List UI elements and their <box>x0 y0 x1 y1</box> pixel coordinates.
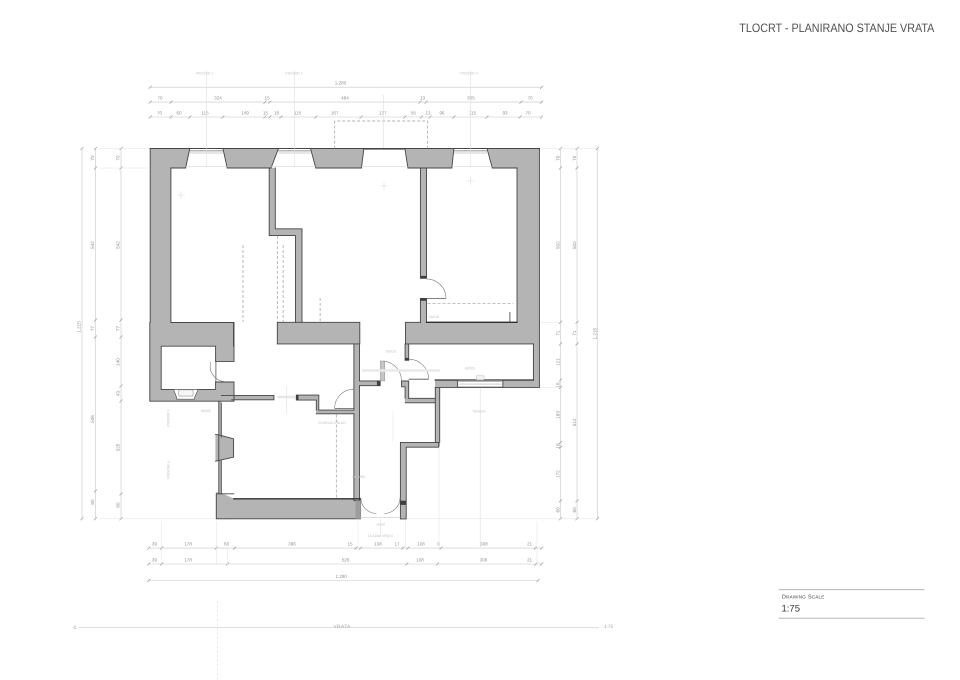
svg-text:39: 39 <box>152 542 158 547</box>
svg-text:18: 18 <box>274 111 280 116</box>
svg-text:526: 526 <box>342 557 350 562</box>
svg-text:18: 18 <box>556 443 561 449</box>
svg-text:108: 108 <box>416 557 424 562</box>
svg-text:17: 17 <box>394 542 400 547</box>
svg-text:ULAZNA VRATA: ULAZNA VRATA <box>368 534 394 538</box>
svg-text:60: 60 <box>224 542 230 547</box>
svg-text:1.280: 1.280 <box>335 81 347 86</box>
svg-text:138: 138 <box>374 542 382 547</box>
svg-text:1.280: 1.280 <box>335 574 347 579</box>
svg-text:15: 15 <box>264 96 270 101</box>
svg-text:PROZOR 1: PROZOR 1 <box>196 72 213 76</box>
svg-text:70: 70 <box>157 111 163 116</box>
svg-text:149: 149 <box>241 111 249 116</box>
svg-text:90/205: 90/205 <box>201 409 211 413</box>
svg-text:39: 39 <box>152 557 158 562</box>
svg-text:60: 60 <box>572 507 577 513</box>
svg-text:77: 77 <box>90 326 95 332</box>
svg-text:506: 506 <box>90 415 95 423</box>
svg-text:172: 172 <box>556 470 561 478</box>
svg-text:18: 18 <box>556 382 561 388</box>
svg-text:90/210: 90/210 <box>429 315 439 319</box>
svg-text:121: 121 <box>556 358 561 366</box>
svg-text:178: 178 <box>184 557 192 562</box>
svg-text:178: 178 <box>184 542 192 547</box>
svg-text:93: 93 <box>502 111 508 116</box>
svg-text:PROZOR 3: PROZOR 3 <box>460 72 477 76</box>
svg-text:108: 108 <box>417 542 425 547</box>
svg-text:TERASA: TERASA <box>472 410 486 414</box>
svg-text:70: 70 <box>572 155 577 161</box>
svg-text:15: 15 <box>263 111 269 116</box>
svg-text:96: 96 <box>439 111 445 116</box>
svg-text:1.215: 1.215 <box>593 328 598 340</box>
svg-text:15: 15 <box>347 542 353 547</box>
svg-text:PROZOR 2: PROZOR 2 <box>285 72 302 76</box>
svg-text:HODNIK: HODNIK <box>352 475 366 479</box>
svg-text:167: 167 <box>331 111 339 116</box>
svg-text:115: 115 <box>201 111 209 116</box>
svg-text:KUHINJA S BLAG.: KUHINJA S BLAG. <box>318 421 347 425</box>
svg-text:90/210: 90/210 <box>386 350 396 354</box>
svg-text:1:75: 1:75 <box>604 624 614 630</box>
svg-text:±0,00: ±0,00 <box>376 523 385 527</box>
svg-text:140: 140 <box>116 358 121 366</box>
svg-text:183: 183 <box>556 411 561 419</box>
svg-text:502: 502 <box>572 241 577 249</box>
svg-text:70: 70 <box>525 111 531 116</box>
svg-text:396: 396 <box>288 542 296 547</box>
svg-text:137: 137 <box>379 111 387 116</box>
svg-text:70: 70 <box>157 96 163 101</box>
svg-text:542: 542 <box>116 241 121 249</box>
svg-text:305: 305 <box>467 96 475 101</box>
svg-text:1:75: 1:75 <box>782 604 801 615</box>
svg-text:PROZOR 5: PROZOR 5 <box>167 409 171 426</box>
svg-text:0.: 0. <box>73 625 77 631</box>
svg-text:13: 13 <box>425 111 431 116</box>
svg-text:21: 21 <box>527 542 533 547</box>
svg-text:324: 324 <box>214 96 222 101</box>
svg-text:60: 60 <box>116 502 121 508</box>
svg-text:502: 502 <box>556 241 561 249</box>
svg-text:542: 542 <box>90 241 95 249</box>
svg-text:71: 71 <box>556 330 561 336</box>
svg-text:0: 0 <box>437 542 440 547</box>
svg-text:43: 43 <box>116 391 121 397</box>
svg-text:1.215: 1.215 <box>77 321 82 333</box>
svg-text:70: 70 <box>527 96 533 101</box>
svg-text:70: 70 <box>556 155 561 161</box>
svg-text:70: 70 <box>116 155 121 161</box>
svg-text:484: 484 <box>341 96 349 101</box>
svg-text:13: 13 <box>420 96 426 101</box>
svg-text:308: 308 <box>480 542 488 547</box>
svg-text:115: 115 <box>294 111 302 116</box>
svg-text:55: 55 <box>411 111 417 116</box>
svg-text:308: 308 <box>480 557 488 562</box>
svg-text:60: 60 <box>90 499 95 505</box>
svg-text:21: 21 <box>527 557 533 562</box>
svg-text:VRATA: VRATA <box>333 624 351 630</box>
svg-text:512: 512 <box>572 418 577 426</box>
svg-text:PROZOR 6: PROZOR 6 <box>167 461 171 478</box>
svg-text:77: 77 <box>116 326 121 332</box>
svg-text:70: 70 <box>90 155 95 161</box>
svg-text:60: 60 <box>556 507 561 513</box>
svg-text:TLOCRT - PLANIRANO STANJE VRAT: TLOCRT - PLANIRANO STANJE VRATA <box>739 21 935 35</box>
svg-text:115: 115 <box>469 111 477 116</box>
svg-text:325: 325 <box>116 443 121 451</box>
svg-text:80/205: 80/205 <box>465 367 475 371</box>
svg-text:60: 60 <box>176 111 182 116</box>
svg-text:71: 71 <box>572 330 577 336</box>
